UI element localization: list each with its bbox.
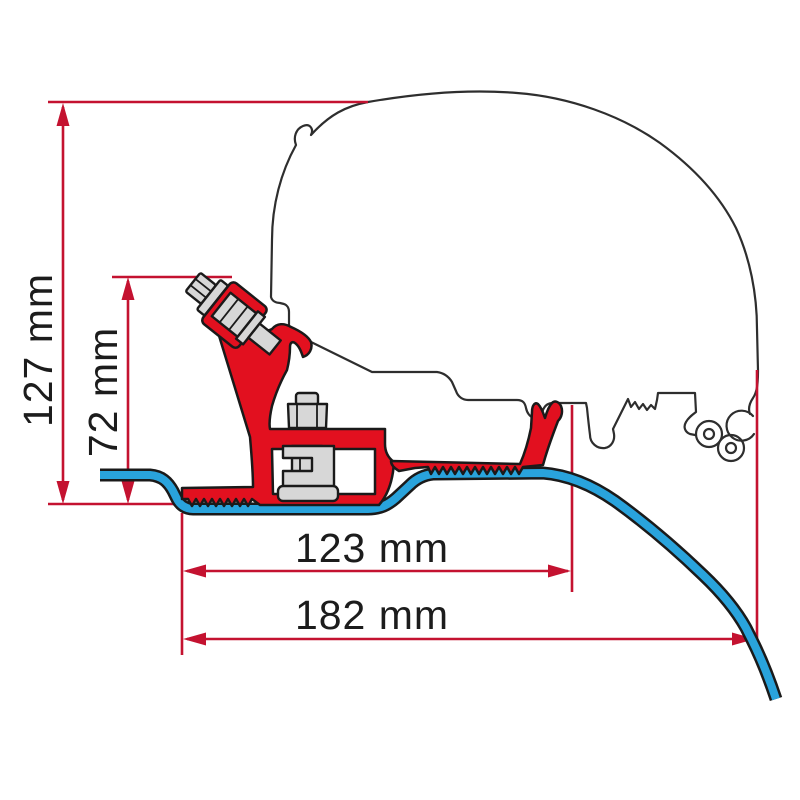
arrow-left-182 — [183, 633, 206, 646]
diagram-canvas: 127 mm 72 mm 123 mm 182 mm — [0, 0, 800, 800]
arrow-left-123 — [183, 565, 206, 578]
rail-tube-right — [718, 435, 744, 461]
label-72mm: 72 mm — [80, 327, 126, 457]
center-bolt — [288, 393, 327, 428]
rail-tube-sections — [696, 411, 754, 461]
dimension-annotations: 127 mm 72 mm 123 mm 182 mm — [15, 102, 757, 660]
label-182mm: 182 mm — [295, 592, 449, 638]
rail-c-channel — [727, 411, 754, 441]
arrow-up-127 — [57, 103, 70, 126]
adapter-bracket — [177, 262, 562, 506]
lower-clamp — [278, 446, 338, 501]
arrow-down-127 — [57, 481, 70, 504]
arrow-right-123 — [548, 565, 571, 578]
label-123mm: 123 mm — [295, 525, 449, 571]
dimension-diagram: 127 mm 72 mm 123 mm 182 mm — [0, 0, 800, 800]
clamp-foot-plate — [278, 486, 338, 501]
dimension-width-inner: 123 mm — [183, 525, 571, 578]
center-bolt-nut — [288, 404, 327, 428]
label-127mm: 127 mm — [15, 273, 61, 427]
arrow-up-72 — [122, 277, 135, 300]
roof-rail-profile — [100, 473, 776, 699]
dimension-height-overall: 127 mm — [15, 103, 70, 504]
bracket-rail-hook-arm — [391, 402, 562, 474]
arrow-down-72 — [122, 481, 135, 504]
dimension-width-overall: 182 mm — [183, 592, 755, 646]
roof-rail-fill — [100, 473, 776, 699]
awning-body-outline — [271, 91, 758, 414]
vehicle-outline — [271, 91, 758, 461]
